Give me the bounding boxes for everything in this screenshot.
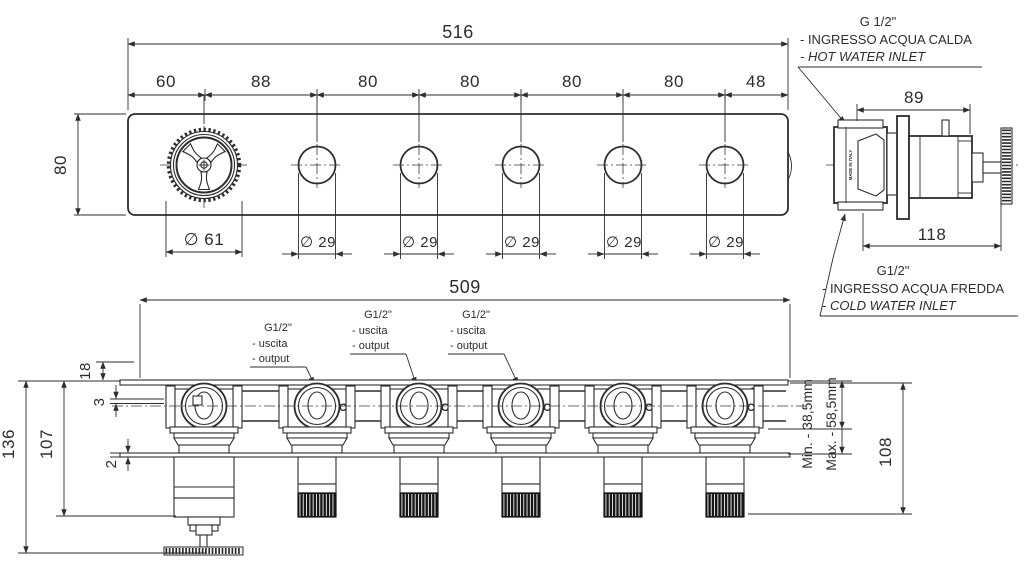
bottom-view: 509 G1/2" - uscita - output G1/2" - usci…: [0, 277, 912, 555]
dim-chain: 60 88 80 80 80 80 48: [128, 72, 788, 101]
stem-2: [298, 457, 336, 517]
dim-hole-dia-text: ∅ 29: [504, 234, 540, 251]
side-bracket: [887, 133, 897, 195]
stem-4: [502, 457, 540, 517]
out2-size-text: G1/2": [364, 309, 392, 321]
out3-en-text: - output: [450, 340, 487, 352]
thermostat-stop-notch: [193, 396, 202, 405]
c-mark-4: C: [543, 402, 551, 414]
dim-60-text: 60: [156, 72, 176, 91]
stem-5: [604, 457, 642, 517]
out1-it-text: - uscita: [252, 338, 288, 350]
lower-rail: [120, 453, 790, 457]
dim-3: 3: [91, 385, 164, 417]
side-wall-plate: [897, 116, 909, 219]
output-label-1: G1/2" - uscita - output: [250, 322, 314, 384]
out3-size-text: G1/2": [462, 309, 490, 321]
dim-max-text: Max. - 58,5mm: [823, 377, 839, 470]
dim-knob-dia-text: ∅ 61: [184, 230, 224, 249]
top-rail: [120, 380, 788, 385]
cold-size-text: G1/2": [877, 263, 910, 278]
output-label-2: G1/2" - uscita - output: [350, 309, 416, 384]
stem-6: [706, 457, 744, 517]
c-mark-6: C: [747, 402, 755, 414]
dim-118-text: 118: [918, 225, 947, 244]
cartridge-stop-tab: [942, 120, 949, 136]
dim-18: 18: [77, 362, 134, 380]
side-cartridge: [909, 136, 972, 198]
dim-hole-dia-text: ∅ 29: [708, 234, 744, 251]
dim-hole-dia-text: ∅ 29: [300, 234, 336, 251]
cold-it-text: - INGRESSO ACQUA FREDDA: [822, 281, 1004, 296]
dim-hole-dia-text: ∅ 29: [402, 234, 438, 251]
side-stem-step: [972, 153, 983, 182]
out1-en-text: - output: [252, 353, 289, 365]
dim-107-text: 107: [37, 429, 56, 459]
valve-unit-4: [483, 384, 559, 454]
thermostatic-valve-drawing: 516 60 88 80 80 80 80 48: [0, 0, 1024, 579]
hot-en-text: - HOT WATER INLET: [800, 49, 926, 64]
dim-80c-text: 80: [562, 72, 582, 91]
dim-18-text: 18: [77, 362, 94, 380]
dim-509-text: 509: [449, 277, 481, 297]
c-mark-2: C: [339, 402, 347, 414]
side-stem-shaft: [983, 162, 1001, 173]
valve-unit-5: [585, 384, 661, 454]
made-in-italy-text: MADE IN ITALY: [848, 150, 853, 180]
technical-drawing-page: 516 60 88 80 80 80 80 48: [0, 0, 1024, 579]
side-knurled-knob: [1001, 128, 1012, 204]
dim-hole-dia-text: ∅ 29: [606, 234, 642, 251]
dim-108-text: 108: [876, 437, 895, 467]
cold-en-text: - COLD WATER INLET: [822, 298, 957, 313]
dim-80d-text: 80: [664, 72, 684, 91]
dim-516: 516: [128, 22, 788, 110]
dim-80a-text: 80: [358, 72, 378, 91]
valve-unit-2: [279, 384, 355, 454]
hot-size-text: G 1/2": [860, 14, 897, 29]
valve-unit-thermostatic: [166, 384, 242, 454]
dim-80b-text: 80: [460, 72, 480, 91]
dim-516-text: 516: [442, 22, 474, 42]
front-view: 516 60 88 80 80 80 80 48: [51, 22, 792, 259]
dim-min-text: Min. - 38,5mm: [799, 379, 815, 468]
valve-unit-6: [687, 384, 763, 454]
dim-88-text: 88: [251, 72, 271, 91]
c-mark-3: C: [441, 402, 449, 414]
output-label-3: G1/2" - uscita - output: [448, 309, 518, 384]
stem-3: [400, 457, 438, 517]
dim-89-text: 89: [904, 88, 924, 107]
c-mark-5: C: [645, 402, 653, 414]
out3-it-text: - uscita: [450, 325, 486, 337]
out1-size-text: G1/2": [264, 322, 292, 334]
thermostatic-stem: [164, 457, 243, 555]
side-valve-body: MADE IN ITALY: [826, 116, 1018, 219]
out2-it-text: - uscita: [352, 325, 388, 337]
dim-2-text: 2: [103, 460, 120, 469]
hot-water-label: G 1/2" - INGRESSO ACQUA CALDA - HOT WATE…: [798, 14, 982, 123]
hand-wheel: [164, 547, 243, 555]
out2-en-text: - output: [352, 340, 389, 352]
dim-136-text: 136: [0, 429, 18, 459]
dim-48-text: 48: [746, 72, 766, 91]
hot-it-text: - INGRESSO ACQUA CALDA: [800, 32, 972, 47]
dim-height-80: 80: [51, 114, 126, 215]
hot-leader-line: [798, 67, 845, 123]
dim-3-text: 3: [91, 398, 108, 407]
valve-unit-3: [381, 384, 457, 454]
side-view: G 1/2" - INGRESSO ACQUA CALDA - HOT WATE…: [798, 14, 1018, 316]
valve-stems: [164, 457, 744, 555]
valve-units: C C C C C: [166, 384, 763, 454]
dim-80h-text: 80: [51, 155, 70, 175]
